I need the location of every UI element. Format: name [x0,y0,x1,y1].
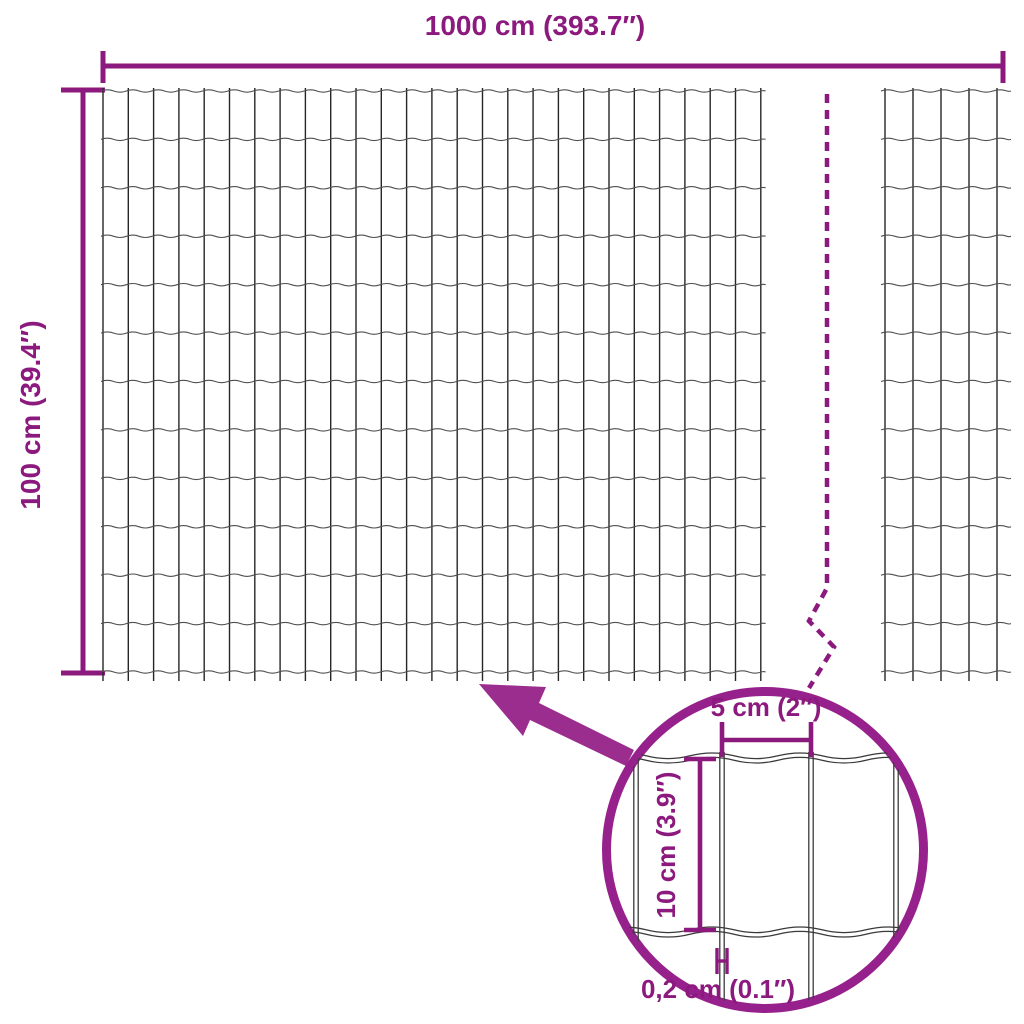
mesh-wire-horizontal [101,477,766,479]
zoom-arrow-icon [479,684,634,766]
height-dimension-label: 100 cm (39.4″) [15,320,46,509]
mesh-wire-horizontal [881,284,1011,286]
mesh-wire-horizontal [881,187,1011,189]
right-mesh-piece [881,88,1011,681]
mesh-wire-horizontal [101,187,766,189]
mesh-wire-horizontal [101,380,766,382]
mesh-wire-horizontal [101,671,766,673]
detail-circle: 5 cm (2″) 10 cm (3.9″) 0,2 cm (0.1″) [602,692,928,1011]
mesh-wire-horizontal [881,526,1011,528]
mesh-wire-horizontal [101,574,766,576]
mesh-wire-horizontal [881,332,1011,334]
mesh-wire-horizontal [101,138,766,140]
mesh-wire-horizontal [881,380,1011,382]
mesh-wire-horizontal [881,235,1011,237]
detail-height-label: 10 cm (3.9″) [651,772,681,919]
mesh-wire-horizontal [101,235,766,237]
detail-height-dimension: 10 cm (3.9″) [651,759,716,930]
width-dimension-label: 1000 cm (393.7″) [425,10,645,41]
wire-thickness-marker [717,948,727,974]
product-dimension-diagram: 1000 cm (393.7″) 100 cm (39.4″) 5 cm (2″… [0,0,1024,1024]
mesh-wire-horizontal [881,429,1011,431]
detail-width-dimension: 5 cm (2″) [711,692,822,757]
mesh-wire-horizontal [881,622,1011,624]
main-mesh-panel [101,88,766,681]
mesh-wire-horizontal [881,90,1011,92]
mesh-wire-horizontal [881,574,1011,576]
mesh-wire-horizontal [101,284,766,286]
mesh-wire-horizontal [881,138,1011,140]
wire-thickness-label: 0,2 cm (0.1″) [641,974,795,1004]
diagram-svg: 1000 cm (393.7″) 100 cm (39.4″) 5 cm (2″… [0,0,1024,1024]
mesh-wire-horizontal [881,477,1011,479]
mesh-wire-horizontal [101,90,766,92]
mesh-wire-horizontal [101,622,766,624]
break-dashed-line [809,94,834,688]
detail-width-label: 5 cm (2″) [711,692,822,722]
mesh-wire-horizontal [101,526,766,528]
mesh-wire-horizontal [101,429,766,431]
mesh-wire-horizontal [881,671,1011,673]
mesh-wire-horizontal [101,332,766,334]
height-dimension: 100 cm (39.4″) [15,90,105,673]
width-dimension: 1000 cm (393.7″) [103,10,1003,83]
